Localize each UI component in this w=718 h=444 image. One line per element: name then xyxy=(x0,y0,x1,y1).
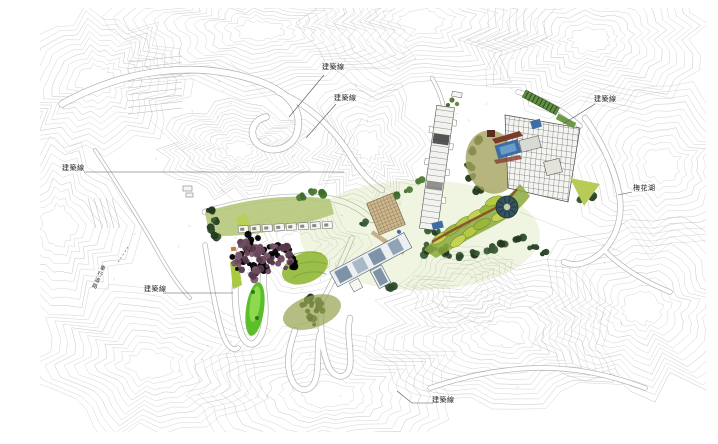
label-lake-meihua: 梅花湖 xyxy=(633,185,656,193)
label-building-line-left: 建築線 xyxy=(62,165,85,173)
tower-roof-garden xyxy=(446,91,462,107)
label-building-line-bottom: 建築線 xyxy=(432,397,455,405)
site-plan-drawing xyxy=(0,0,718,444)
site-plan-canvas: 建築線 建築線 建築線 建築線 建築線 建築線 梅花湖 車行道路 xyxy=(0,0,718,444)
parking-tree-strip xyxy=(522,90,559,115)
label-building-line-top-2: 建築線 xyxy=(334,95,357,103)
label-building-line-bottom-left: 建築線 xyxy=(144,286,167,294)
label-building-line-top-1: 建築線 xyxy=(322,64,345,72)
right-knoll xyxy=(570,178,600,206)
label-building-line-right: 建築線 xyxy=(594,96,617,104)
